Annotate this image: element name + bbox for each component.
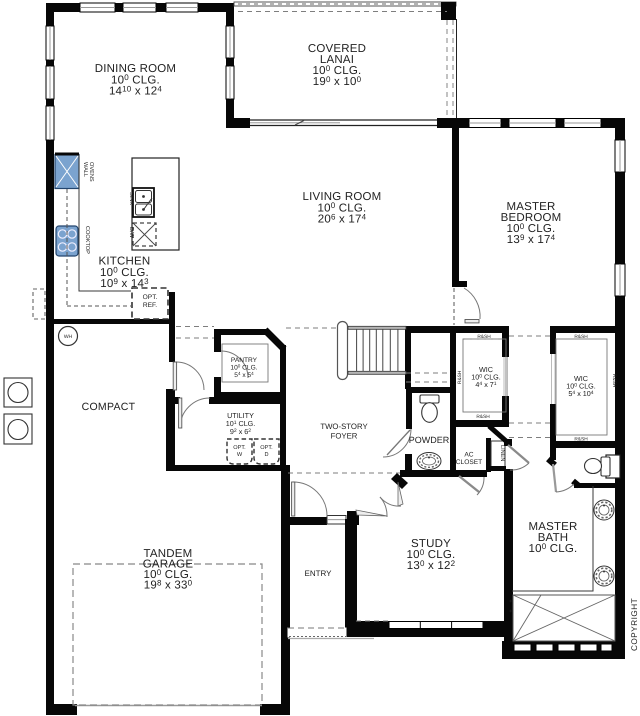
svg-text:R&SH: R&SH <box>611 374 617 388</box>
svg-text:COVEREDLANAI100 CLG.190 x 100: COVEREDLANAI100 CLG.190 x 100 <box>308 43 366 88</box>
svg-text:OPT.REF.: OPT.REF. <box>143 294 158 309</box>
svg-text:WH: WH <box>64 334 73 340</box>
svg-text:ENTRY: ENTRY <box>305 569 333 578</box>
svg-text:LINEN: LINEN <box>499 445 505 461</box>
svg-text:UTILITY101 CLG.92 x 62: UTILITY101 CLG.92 x 62 <box>226 411 256 436</box>
svg-text:R&SH: R&SH <box>457 370 463 384</box>
svg-text:SINK: SINK <box>128 192 134 205</box>
svg-text:OVENS: OVENS <box>88 162 94 182</box>
svg-text:COOKTOP: COOKTOP <box>84 226 90 254</box>
svg-text:+: + <box>509 609 513 615</box>
svg-text:KITCHEN100 CLG.109 x 143: KITCHEN100 CLG.109 x 143 <box>99 256 151 291</box>
svg-text:R&SH: R&SH <box>574 437 588 443</box>
svg-text:+: + <box>509 599 513 605</box>
svg-text:R&SH: R&SH <box>476 414 490 420</box>
svg-text:STUDY100 CLG.130 x 122: STUDY100 CLG.130 x 122 <box>407 538 456 572</box>
svg-text:D/W: D/W <box>128 227 135 239</box>
svg-text:POWDER: POWDER <box>409 435 450 445</box>
svg-text:COPYRIGHT: COPYRIGHT <box>630 598 639 651</box>
svg-text:R&SH: R&SH <box>477 334 491 340</box>
svg-text:WALL: WALL <box>82 162 88 177</box>
svg-text:R&SH: R&SH <box>574 334 588 340</box>
svg-text:PANTRY100 CLG.54 x 54: PANTRY100 CLG.54 x 54 <box>230 357 257 379</box>
svg-text:MASTERBEDROOM100 CLG.139 x 174: MASTERBEDROOM100 CLG.139 x 174 <box>501 201 562 246</box>
svg-text:COMPACT: COMPACT <box>82 401 136 413</box>
svg-text:TANDEMGARAGE100 CLG.198 x 330: TANDEMGARAGE100 CLG.198 x 330 <box>143 548 194 592</box>
